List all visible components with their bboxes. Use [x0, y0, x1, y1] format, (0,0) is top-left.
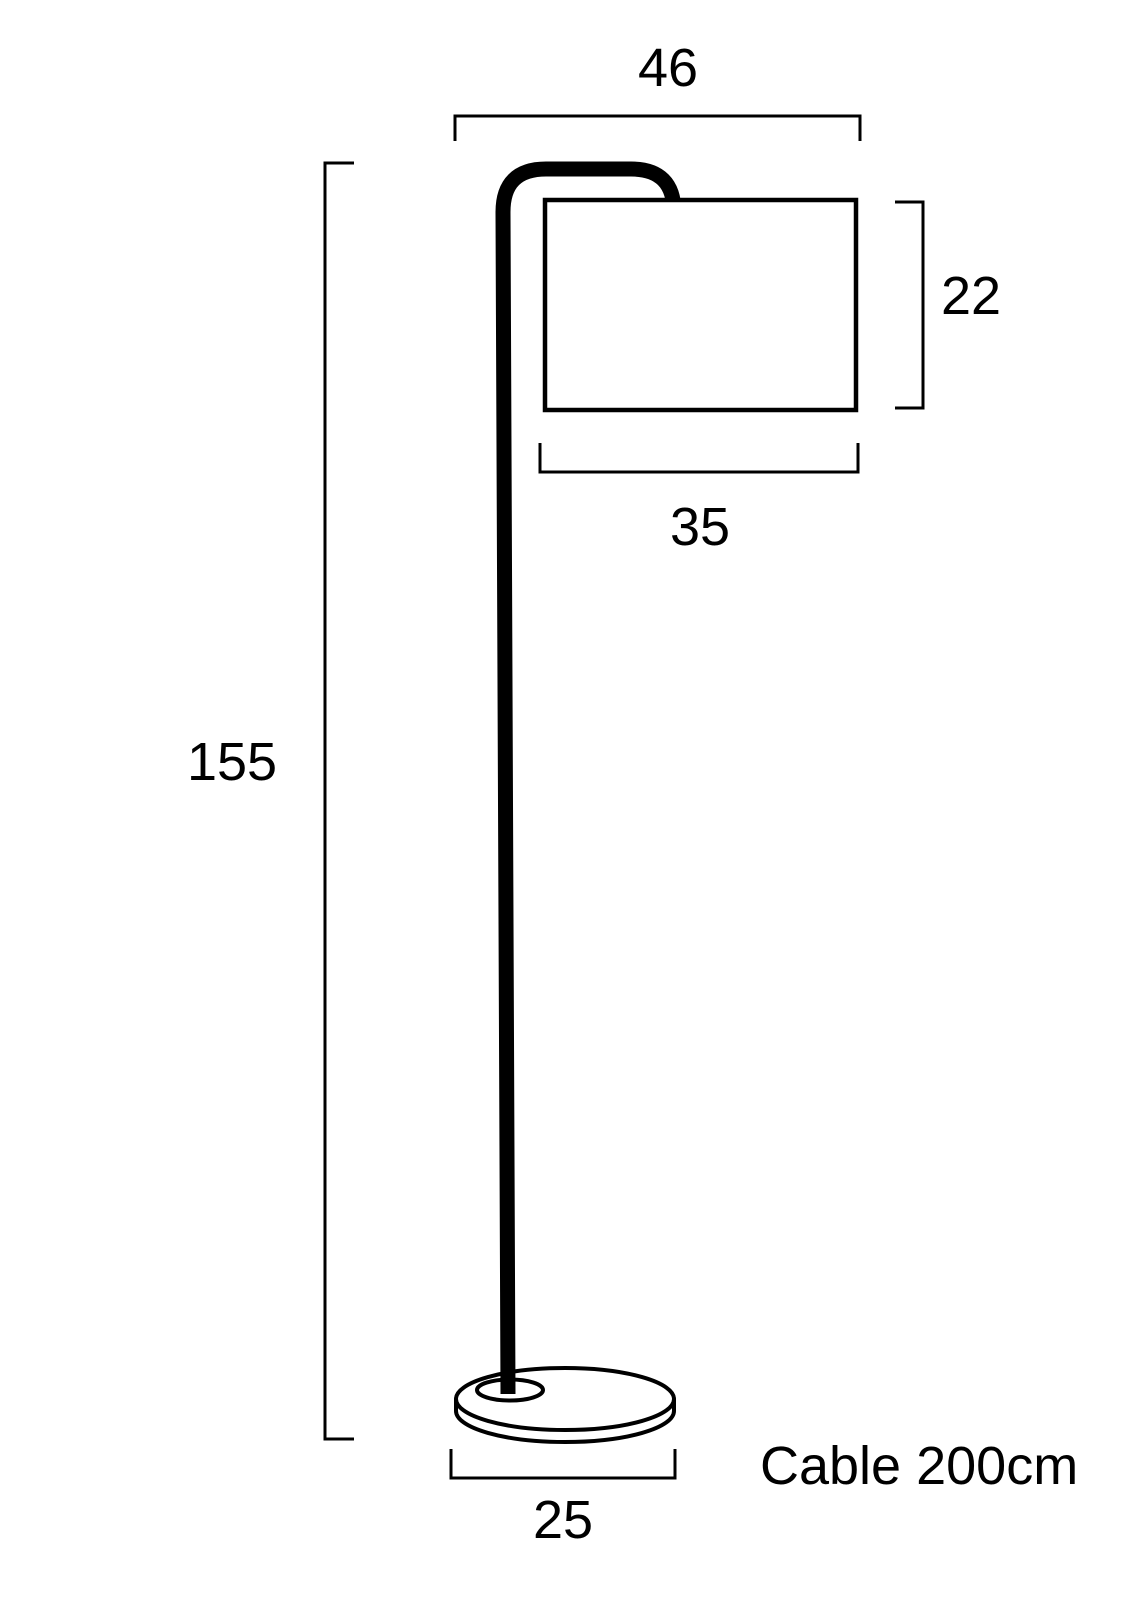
dimension-bracket-top-width: [455, 116, 860, 141]
dimension-label-shade-height: 22: [941, 266, 1001, 326]
dimension-bracket-total-height: [325, 163, 354, 1439]
lamp-shade: [545, 200, 856, 410]
dimension-label-total-height: 155: [187, 732, 277, 792]
cable-length-note: Cable 200cm: [760, 1436, 1078, 1496]
lamp-dimension-diagram: 46 22 35 155 25 Cable 200cm: [0, 0, 1131, 1600]
dimension-bracket-shade-width: [540, 443, 858, 472]
dimension-bracket-base-width: [451, 1449, 675, 1478]
dimension-label-top-width: 46: [638, 38, 698, 98]
dimension-label-base-width: 25: [533, 1490, 593, 1550]
dimension-bracket-shade-height: [895, 202, 923, 408]
dimension-label-shade-width: 35: [670, 497, 730, 557]
